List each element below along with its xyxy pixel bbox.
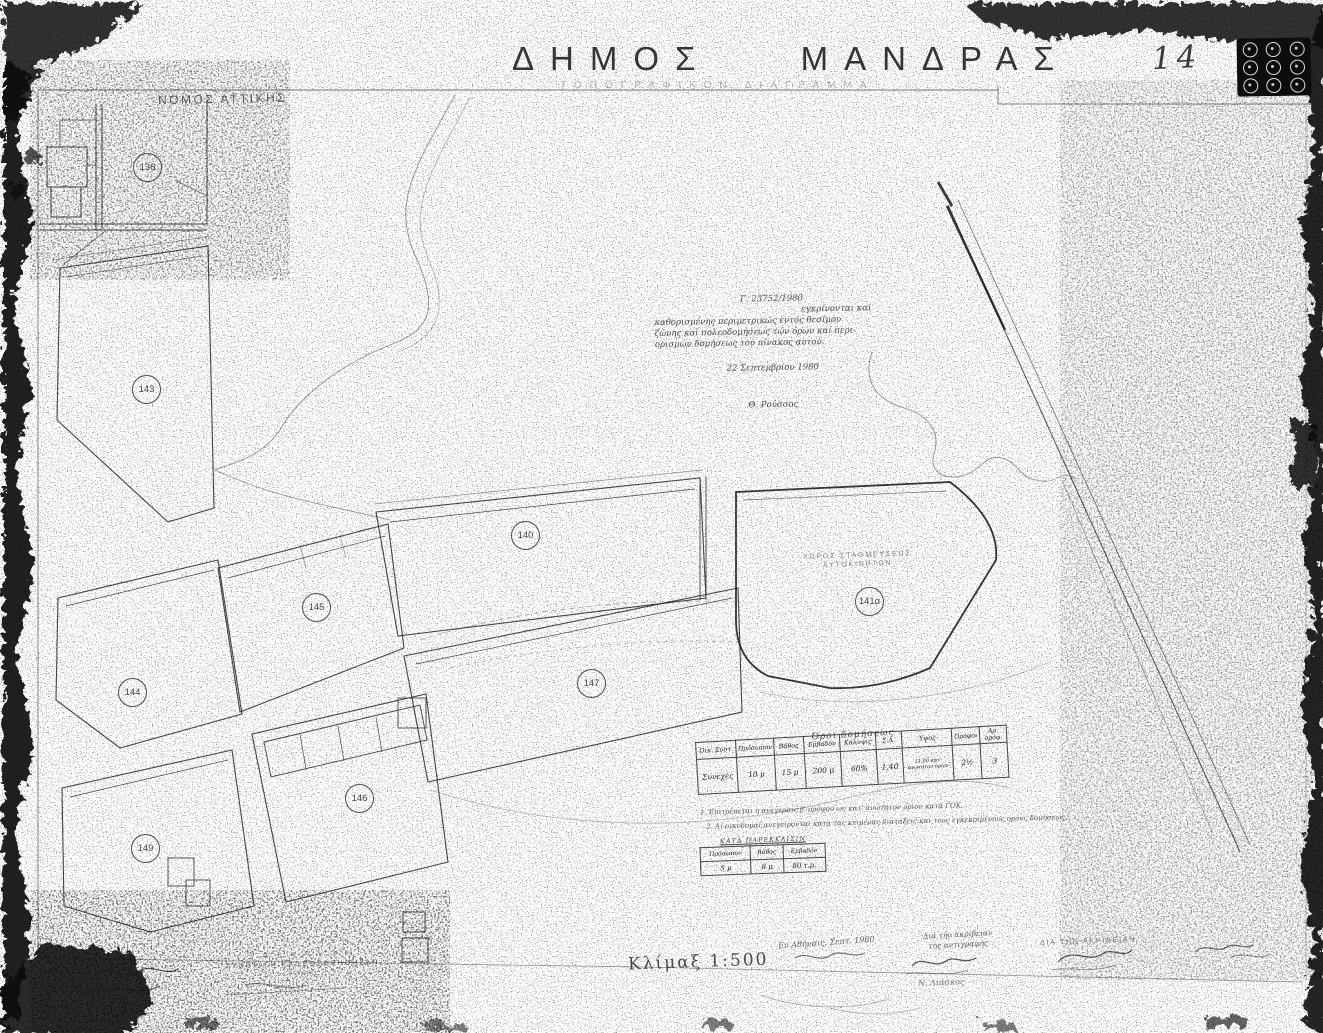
sheet-index-grid — [1236, 37, 1311, 96]
sheet-index-cell — [1267, 77, 1282, 92]
exception-terms: ΚΑΤΑ ΠΑΡΕΚΚΛΙΣΙΝ Πρόσωπον Βάθος Εμβαδόν … — [700, 836, 826, 874]
sheet-index-cell — [1266, 41, 1281, 56]
exception-value-row: 5 μ 8 μ 80 τ.μ. — [701, 857, 826, 875]
plot-label: 146 — [352, 793, 368, 804]
region-label: ΝΟΜΟΣ ΑΤΤΙΚΗΣ — [158, 91, 287, 107]
terms-header: Όροφοι — [951, 727, 980, 746]
exception-header: Βάθος — [750, 845, 783, 860]
plot-label: 147 — [584, 678, 600, 689]
exception-table: Πρόσωπον Βάθος Εμβαδόν 5 μ 8 μ 80 τ.μ. — [700, 843, 827, 876]
plot-circle-145: 145 — [302, 593, 331, 622]
sheet-index-cell — [1290, 77, 1305, 92]
plot-label: 141α — [859, 596, 880, 607]
terms-header: Κάλυψις — [840, 733, 876, 752]
terms-header: Σ.Δ. — [875, 731, 902, 749]
map-title: ΔΗΜΟΣ ΜΑΝΔΡΑΣ — [512, 40, 1070, 78]
plot-circle-146: 146 — [345, 784, 374, 813]
sheet-index-cell — [1289, 41, 1304, 56]
sheet-index-cell — [1266, 59, 1281, 74]
plot-circle-149: 149 — [131, 834, 160, 863]
terms-value: 3 — [980, 742, 1009, 778]
terms-value: 1,40 — [876, 748, 904, 784]
map-subtitle: ΤΟΠΟΓΡΑΦΙΚΟΝ ΔΙΑΓΡΑΜΜΑ — [560, 80, 874, 91]
terms-header: Βάθος — [773, 737, 804, 756]
plot-circle-140: 140 — [511, 521, 540, 550]
exception-value: 80 τ.μ. — [783, 857, 826, 872]
plot-circle-141a: 141α — [855, 587, 884, 616]
terms-header: Εμβαδόν — [803, 734, 841, 753]
sheet-index-cell — [1243, 60, 1258, 75]
sheet-index-cell — [1290, 59, 1305, 74]
exception-header: Εμβαδόν — [783, 843, 826, 858]
terms-value: 11,00 κατ' ανώτατον όριον — [902, 745, 954, 783]
sheet-index-cell — [1243, 42, 1258, 57]
map-drawing — [0, 0, 1323, 1033]
terms-value: 10 μ — [737, 755, 776, 792]
scanned-map-sheet: ΝΟΜΟΣ ΑΤΤΙΚΗΣ ΔΗΜΟΣ ΜΑΝΔΡΑΣ ΤΟΠΟΓΡΑΦΙΚΟΝ… — [0, 0, 1323, 1033]
terms-value: Συνεχές — [697, 757, 739, 794]
plot-label: 136 — [140, 162, 156, 173]
terms-value: 200 μ — [804, 751, 843, 788]
scan-noise-dense-right — [1060, 80, 1323, 980]
sheet-index-cell — [1243, 78, 1258, 93]
plot-label: 140 — [518, 530, 534, 541]
plot-circle-136: 136 — [133, 153, 162, 182]
terms-value: 60% — [841, 750, 878, 787]
exception-value: 8 μ — [751, 859, 784, 874]
plot-label: 145 — [309, 602, 325, 613]
building-terms: Όροι δομήσεως Οικ. Σύστ. Πρόσωπον Βάθος … — [698, 730, 1010, 795]
exception-value: 5 μ — [701, 860, 752, 876]
plot-label: 149 — [138, 843, 154, 854]
terms-header: Πρόσωπον — [736, 738, 774, 757]
terms-header: Αρ. ορόφ. — [979, 725, 1007, 743]
sheet-number: 14 — [1151, 39, 1202, 78]
approval-note: Γ. 23752/1980 εγκρίνονται καί καθορισμέν… — [654, 292, 891, 413]
plot-circle-144: 144 — [118, 678, 147, 707]
terms-value: 15 μ — [774, 754, 806, 791]
plot-label: 143 — [139, 384, 155, 395]
plot-label: 144 — [125, 687, 141, 698]
plot-circle-147: 147 — [577, 669, 606, 698]
approval-date: 22 Σεπτεμβρίου 1980 — [655, 361, 890, 376]
plot-circle-143: 143 — [132, 375, 161, 404]
signature-mid-name: Ν. Λιάσκος — [918, 977, 965, 988]
review-stamp: Ε Θ Ε Ω Ρ Η Θ Η ΣΥΝΕΤΑΓΗ ΚΑΙ ΕΘΕΩΡΗΘΗΣΑΝ… — [205, 949, 401, 979]
terms-value: 2½ — [952, 744, 982, 781]
